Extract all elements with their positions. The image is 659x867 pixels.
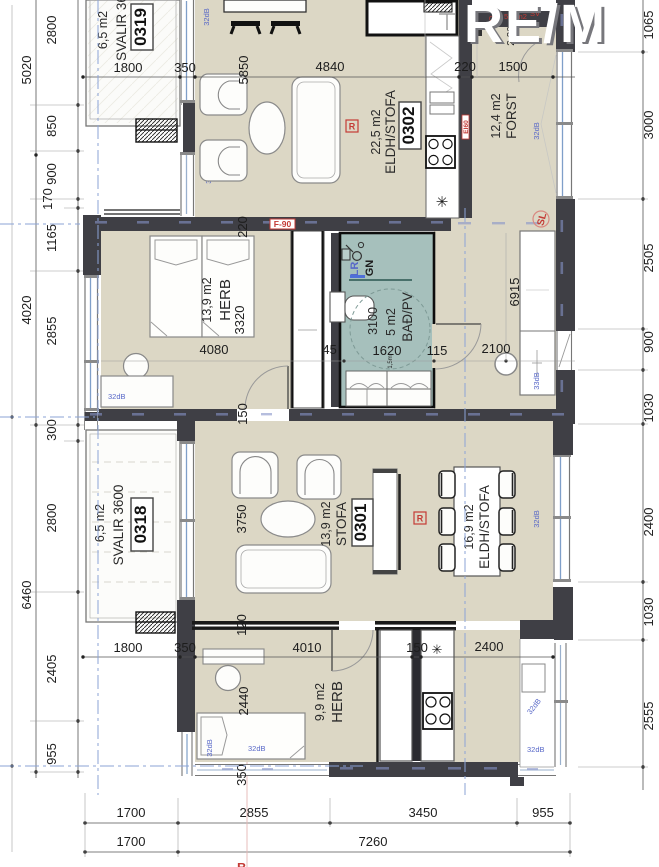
svg-text:2855: 2855 [44,317,59,346]
svg-text:850: 850 [44,115,59,137]
svg-text:1165: 1165 [44,224,59,252]
svg-text:0301: 0301 [351,504,370,542]
svg-text:3320: 3320 [232,306,247,335]
svg-text:2555: 2555 [641,702,656,731]
svg-text:6,5 m2: 6,5 m2 [93,504,107,542]
svg-text:BAÐ/PV: BAÐ/PV [400,292,415,342]
svg-text:32dB: 32dB [248,744,266,753]
svg-text:13,9 m2: 13,9 m2 [319,501,333,546]
svg-text:0318: 0318 [131,506,150,544]
svg-text:300: 300 [44,419,59,441]
svg-text:FORST: FORST [504,93,519,139]
svg-text:150: 150 [406,640,428,655]
svg-text:✳: ✳ [432,642,443,657]
svg-text:350: 350 [234,764,249,786]
svg-text:955: 955 [532,805,554,820]
svg-text:12,4 m2: 12,4 m2 [489,93,503,138]
svg-text:6460: 6460 [19,581,34,610]
svg-text:2440: 2440 [236,687,251,716]
svg-text:22,5 m2: 22,5 m2 [369,109,383,154]
svg-text:32dB: 32dB [205,739,214,757]
svg-text:R: R [417,514,424,524]
svg-text:0319: 0319 [131,8,150,46]
svg-text:5020: 5020 [19,56,34,85]
svg-text:R: R [349,122,356,132]
svg-text:13,9 m2: 13,9 m2 [200,277,214,322]
svg-text:16,9 m2: 16,9 m2 [462,504,476,549]
svg-text:2405: 2405 [44,655,59,684]
svg-text:6915: 6915 [507,278,522,307]
svg-text:115: 115 [427,343,448,358]
svg-text:3450: 3450 [409,805,438,820]
svg-text:32dB: 32dB [532,510,541,528]
svg-text:EI60: EI60 [463,120,470,134]
svg-text:4020: 4020 [19,296,34,325]
svg-text:1030: 1030 [641,394,656,423]
svg-text:HERB: HERB [329,681,346,723]
svg-text:2100: 2100 [482,341,511,356]
svg-text:2400: 2400 [641,508,656,537]
svg-text:900: 900 [44,163,59,185]
svg-text:1800: 1800 [114,60,143,75]
svg-text:2800: 2800 [44,504,59,533]
svg-text:0302: 0302 [399,107,418,145]
svg-text:32dB: 32dB [108,392,126,401]
svg-text:4840: 4840 [316,59,345,74]
svg-text:220: 220 [235,216,250,238]
svg-text:SVALIR 36: SVALIR 36 [114,0,129,61]
svg-text:GN: GN [364,260,376,277]
svg-text:B: B [237,860,246,867]
svg-text:9,9 m2: 9,9 m2 [313,683,327,721]
svg-text:3000: 3000 [641,111,656,140]
svg-text:SVALIR 3600: SVALIR 3600 [111,485,126,566]
svg-text:120: 120 [234,614,249,636]
svg-text:5850: 5850 [236,56,251,85]
svg-text:900: 900 [641,331,656,353]
svg-text:✳: ✳ [436,194,449,211]
svg-text:7260: 7260 [359,834,388,849]
svg-text:4080: 4080 [200,342,229,357]
svg-text:1500: 1500 [499,59,528,74]
svg-text:RE/M: RE/M [464,0,607,54]
svg-text:955: 955 [44,743,59,765]
svg-text:LR: LR [349,262,361,277]
svg-text:1065: 1065 [641,11,656,40]
svg-text:2855: 2855 [240,805,269,820]
svg-text:F-90: F-90 [274,219,292,229]
svg-text:350: 350 [174,60,196,75]
svg-text:4010: 4010 [293,640,322,655]
svg-text:STOFA: STOFA [334,502,349,546]
svg-text:32dB: 32dB [527,745,545,754]
svg-text:2400: 2400 [475,639,504,654]
svg-text:2505: 2505 [641,244,656,273]
svg-text:350: 350 [174,640,196,655]
svg-text:220: 220 [454,59,476,74]
svg-text:3750: 3750 [234,505,249,534]
svg-text:5 m2: 5 m2 [384,308,398,336]
svg-text:1700: 1700 [117,834,146,849]
svg-text:1800: 1800 [114,640,143,655]
svg-text:1620: 1620 [373,343,402,358]
svg-text:32dB: 32dB [202,8,211,26]
svg-text:32dB: 32dB [532,122,541,140]
svg-text:150: 150 [235,403,250,425]
svg-text:1700: 1700 [117,805,146,820]
svg-text:1030: 1030 [641,598,656,627]
svg-text:ELDH/STOFA: ELDH/STOFA [383,90,398,174]
svg-text:ELDH/STOFA: ELDH/STOFA [477,485,492,569]
svg-text:33dB: 33dB [532,372,541,390]
svg-text:3100: 3100 [366,307,380,335]
svg-text:2800: 2800 [44,16,59,45]
